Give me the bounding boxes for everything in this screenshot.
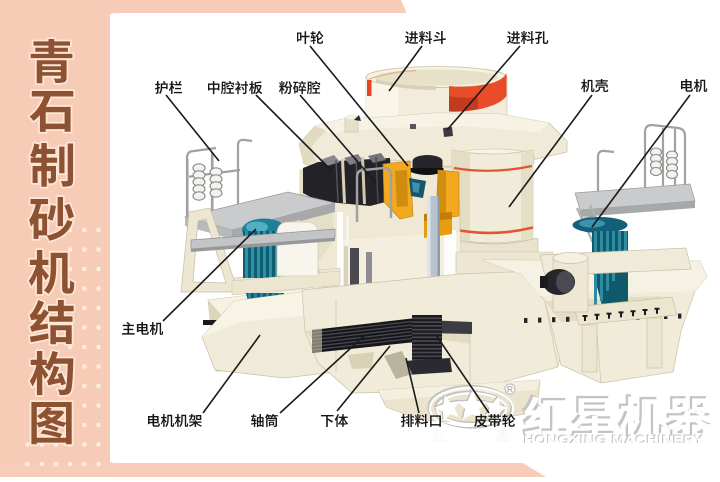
svg-text:R: R — [507, 384, 513, 394]
svg-text:HONGXING MACHINERY: HONGXING MACHINERY — [524, 433, 704, 447]
